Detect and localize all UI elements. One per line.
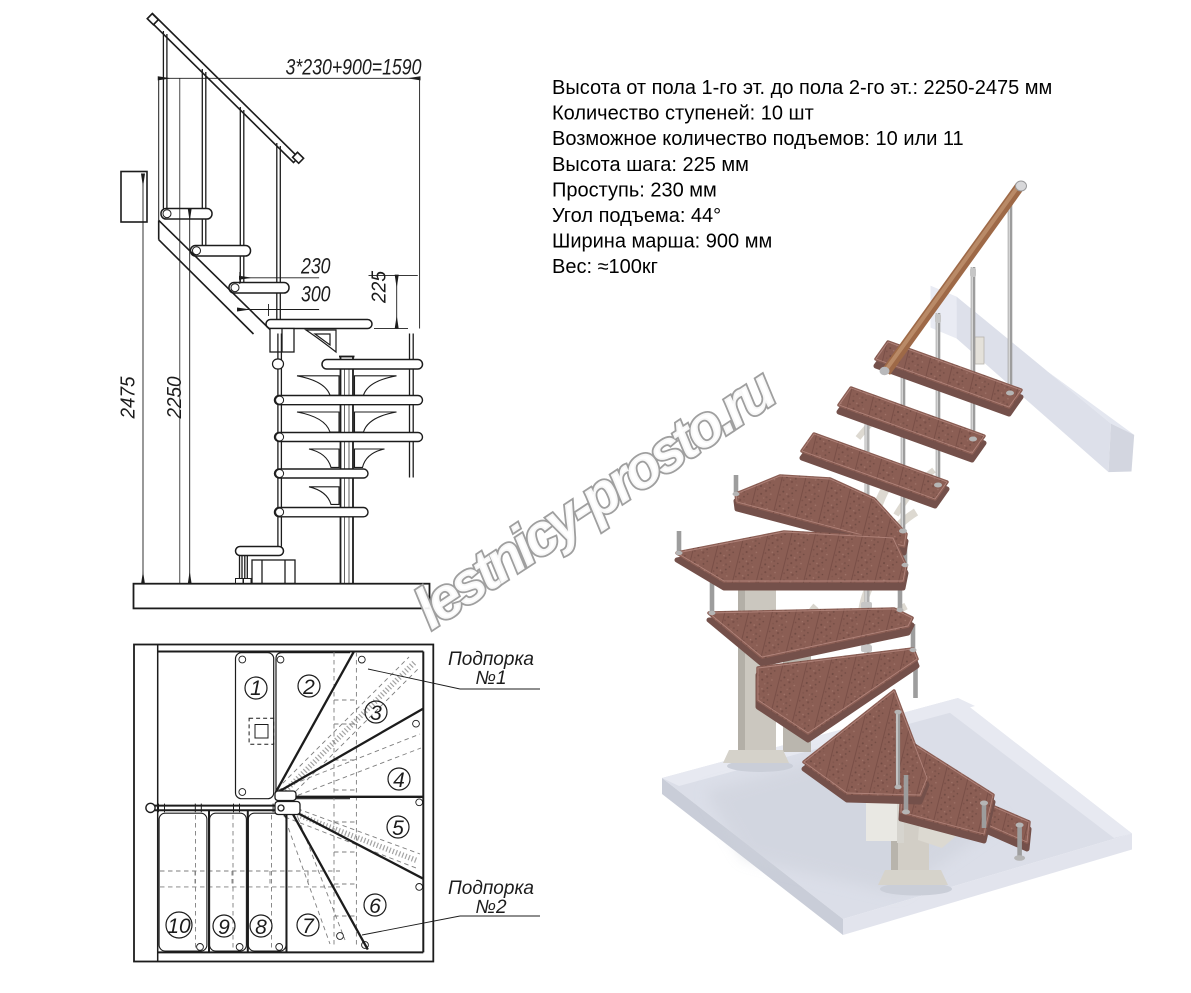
svg-text:Высота от пола 1-го эт. до пол: Высота от пола 1-го эт. до пола 2-го эт.…	[552, 77, 1052, 99]
svg-text:7: 7	[302, 915, 315, 938]
svg-text:2250: 2250	[164, 377, 186, 420]
svg-text:3: 3	[370, 702, 382, 725]
svg-text:Подпорка: Подпорка	[448, 649, 534, 670]
svg-text:6: 6	[369, 895, 381, 918]
svg-text:4: 4	[393, 769, 405, 792]
svg-text:3*230+900=1590: 3*230+900=1590	[286, 55, 423, 80]
svg-text:Угол подъема: 44°: Угол подъема: 44°	[552, 205, 721, 227]
svg-text:Количество ступеней: 10 шт: Количество ступеней: 10 шт	[552, 103, 814, 125]
svg-text:Подпорка: Подпорка	[448, 878, 534, 899]
svg-text:Вес: ≈100кг: Вес: ≈100кг	[552, 256, 658, 278]
svg-text:225: 225	[369, 270, 391, 304]
svg-text:№1: №1	[475, 668, 506, 689]
svg-text:№2: №2	[475, 897, 507, 918]
svg-text:5: 5	[392, 817, 404, 840]
svg-text:2475: 2475	[118, 376, 140, 420]
svg-text:2: 2	[302, 676, 315, 699]
svg-text:8: 8	[255, 916, 267, 939]
svg-text:Высота шага: 225 мм: Высота шага: 225 мм	[552, 154, 749, 176]
svg-text:Проступь: 230 мм: Проступь: 230 мм	[552, 179, 717, 201]
svg-text:230: 230	[300, 254, 331, 279]
svg-text:Возможное количество подъемов:: Возможное количество подъемов: 10 или 11	[552, 128, 964, 150]
svg-text:300: 300	[301, 282, 331, 307]
svg-text:1: 1	[250, 677, 262, 700]
svg-text:Ширина марша: 900 мм: Ширина марша: 900 мм	[552, 231, 772, 253]
svg-text:9: 9	[218, 916, 230, 939]
svg-text:10: 10	[167, 915, 191, 938]
